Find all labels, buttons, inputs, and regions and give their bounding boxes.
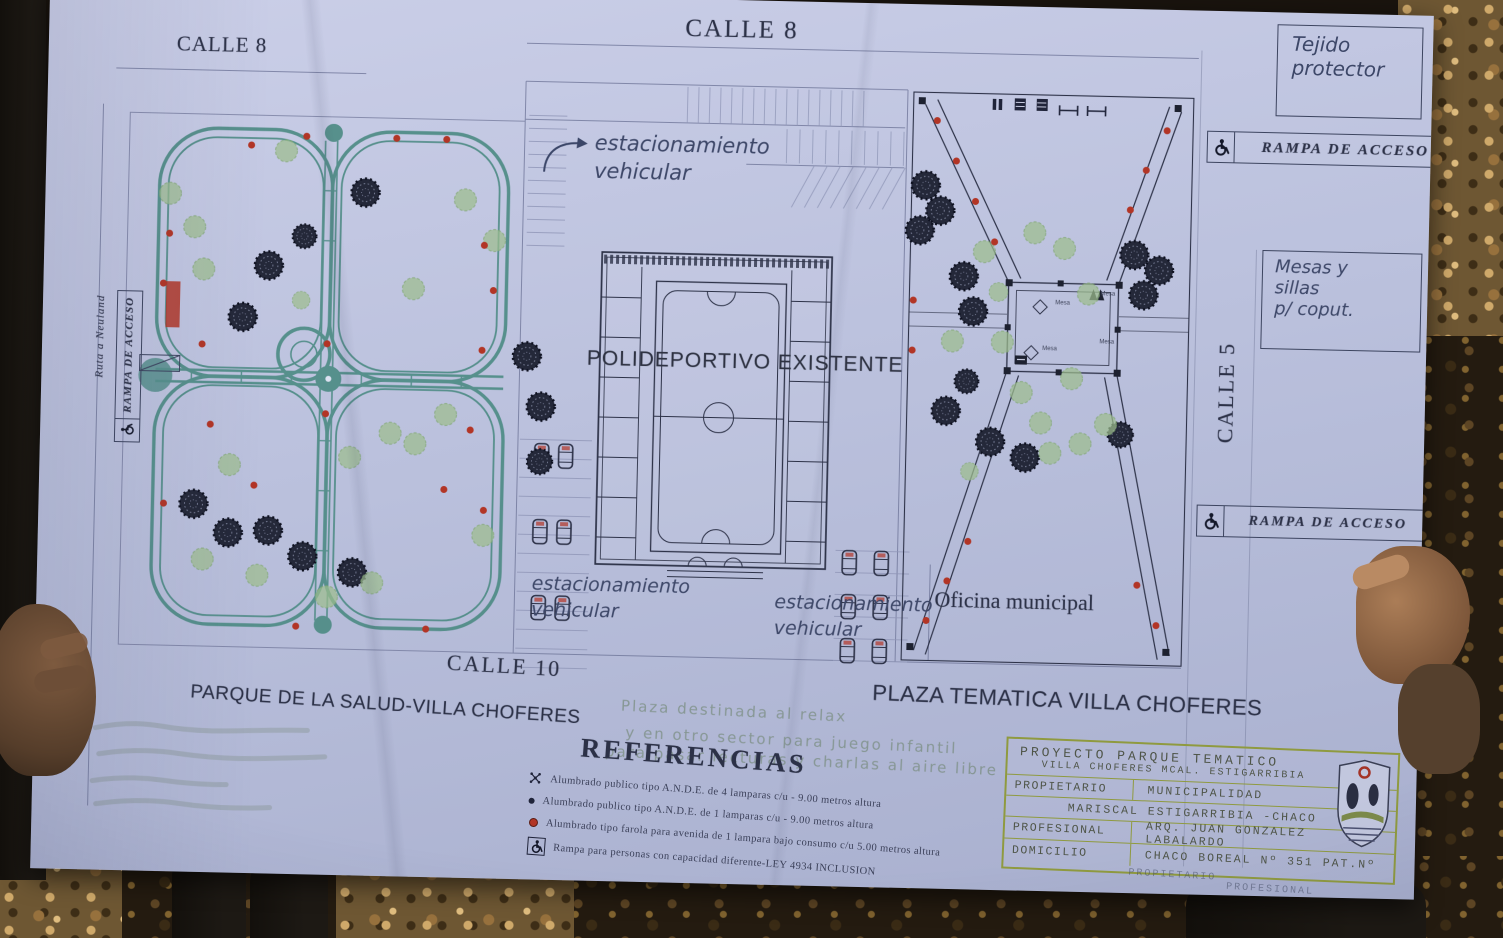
rampa-acceso-box-top: RAMPA DE ACCESO	[1206, 131, 1433, 169]
one-lamp-post-icon	[528, 797, 534, 803]
rampa-acceso-label: RAMPA DE ACCESO	[1224, 513, 1431, 534]
municipal-shield-icon	[1334, 757, 1392, 849]
row-value: MUNICIPALIDAD	[1133, 783, 1263, 801]
estacionamiento-label-bottom-left: estacionamiento vehicular	[531, 571, 692, 626]
photo-of-site-plan: CALLE 8 CALLE 8 Tejido protector RAMPA D…	[0, 0, 1503, 938]
rampa-acceso-label: RAMPA DE ACCESO	[121, 291, 136, 418]
title-block: PROYECTO PARQUE TEMATICO VILLA CHOFERES …	[1001, 737, 1400, 885]
rampa-acceso-box-left: RAMPA DE ACCESO	[114, 290, 143, 443]
mesas-line3: p/ coput.	[1274, 298, 1420, 322]
rampa-acceso-label: RAMPA DE ACCESO	[1235, 139, 1434, 161]
plan-sheet: CALLE 8 CALLE 8 Tejido protector RAMPA D…	[30, 0, 1434, 900]
street-label-calle8-top: CALLE 8	[685, 15, 799, 46]
mesa-label: Mesa	[1100, 291, 1115, 297]
row-value: CHACO BOREAL Nº 351 PAT.Nº	[1131, 848, 1377, 871]
street-label-calle5: CALLE 5	[1212, 342, 1240, 444]
estacionamiento-label-top: estacionamiento vehicular	[594, 129, 775, 190]
polideportivo-building	[595, 252, 832, 580]
plaza-furniture-icons	[993, 98, 1048, 111]
oficina-municipal-label: Oficina municipal	[934, 587, 1094, 617]
faint-handwriting	[92, 723, 326, 810]
mesa-label: Mesa	[1055, 300, 1070, 306]
mesa-label: Mesa	[1042, 346, 1057, 352]
wheelchair-icon	[1197, 506, 1225, 537]
tejido-line1: Tejido	[1292, 32, 1423, 59]
estacionamiento-label-bottom-mid: estacionamiento vehicular	[773, 590, 944, 645]
wheelchair-icon	[527, 837, 546, 856]
farola-lamp-icon	[529, 818, 539, 828]
tejido-protector-note: Tejido protector	[1276, 24, 1424, 119]
wheelchair-icon	[1207, 132, 1235, 163]
row-label: DOMICILIO	[1003, 839, 1131, 866]
park-paths	[133, 120, 510, 638]
right-forearm	[1398, 664, 1480, 774]
wheelchair-icon	[115, 418, 140, 442]
mesa-label: Mesa	[1099, 339, 1114, 345]
street-label-calle8-left: CALLE 8	[177, 31, 268, 58]
rampa-acceso-box-bottom: RAMPA DE ACCESO	[1196, 505, 1433, 542]
mesas-sillas-note: Mesas y sillas p/ coput.	[1260, 250, 1422, 353]
ruta-neuland-label: Ruta a Neuland	[93, 294, 107, 377]
four-lamp-post-icon	[528, 771, 543, 786]
tejido-line2: protector	[1291, 56, 1422, 83]
